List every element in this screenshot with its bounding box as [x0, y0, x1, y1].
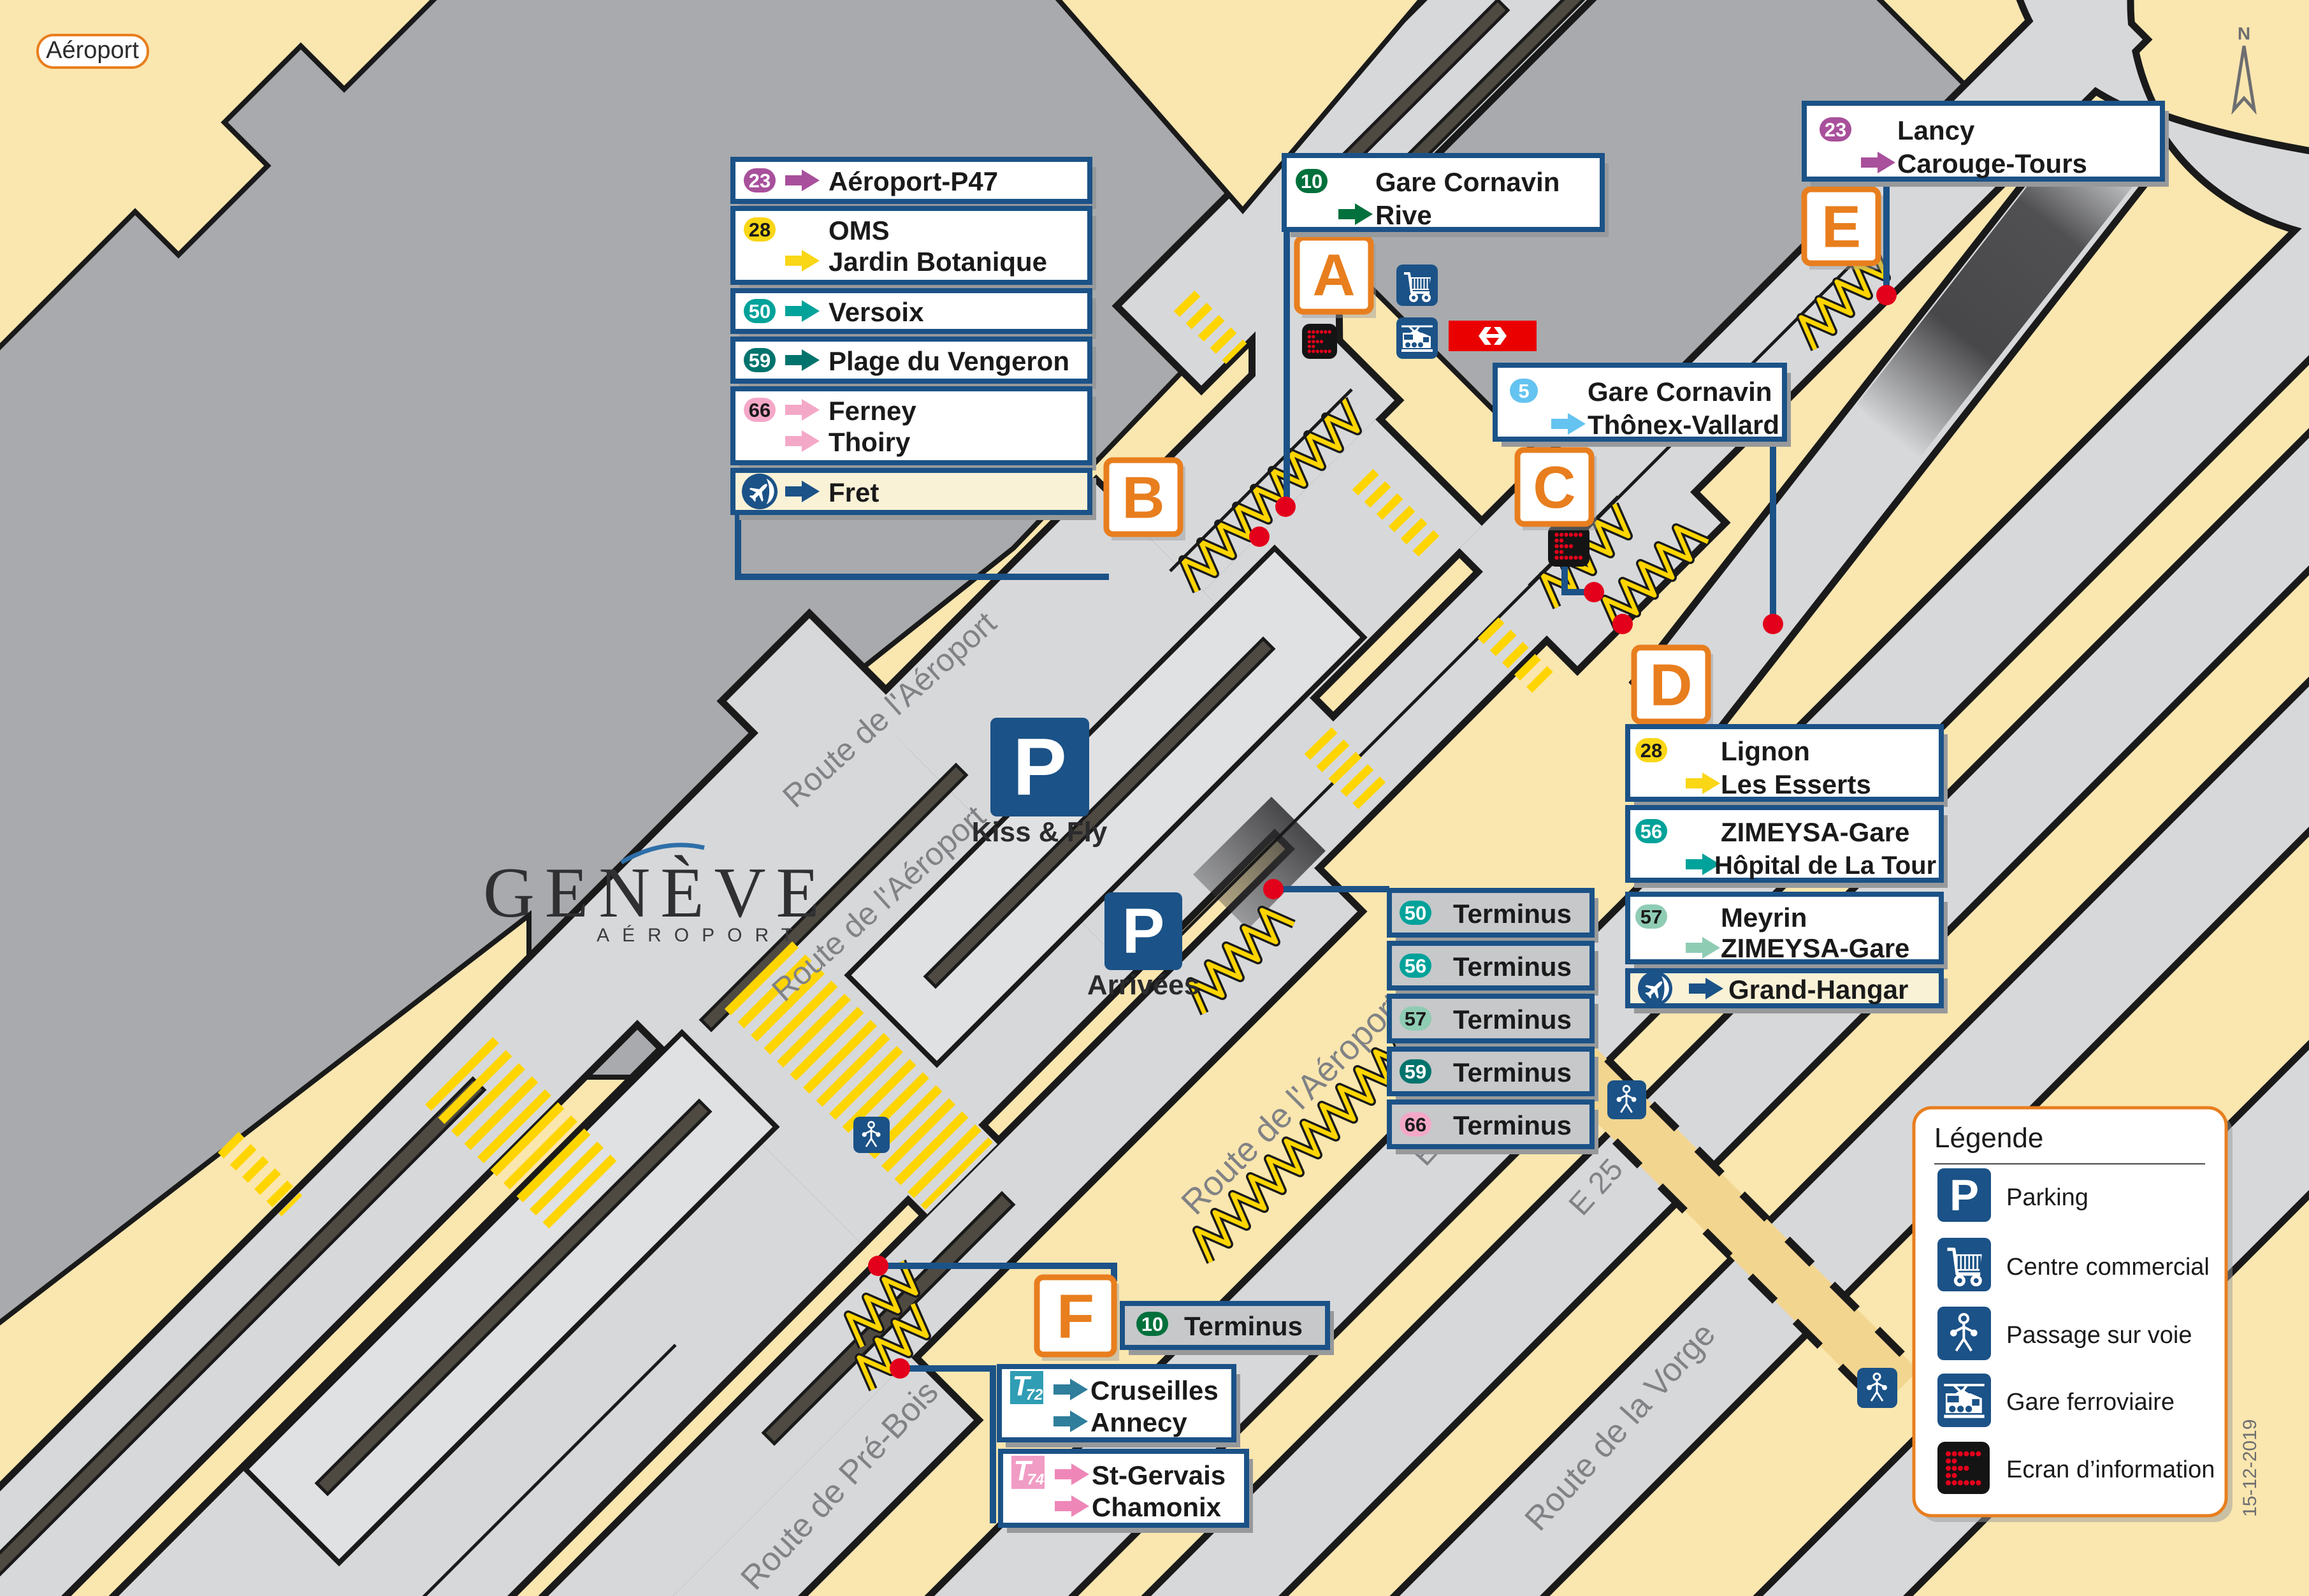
svg-text:Cruseilles: Cruseilles	[1090, 1375, 1219, 1405]
svg-text:Aéroport-P47: Aéroport-P47	[829, 166, 998, 196]
svg-text:Thoiry: Thoiry	[829, 427, 911, 457]
svg-text:B: B	[1122, 464, 1164, 530]
svg-text:A: A	[1312, 242, 1355, 308]
svg-text:Gare Cornavin: Gare Cornavin	[1588, 377, 1772, 407]
svg-text:ZIMEYSA-Gare: ZIMEYSA-Gare	[1721, 817, 1909, 847]
svg-text:Annecy: Annecy	[1090, 1407, 1187, 1437]
svg-text:Plage du Vengeron: Plage du Vengeron	[829, 346, 1069, 376]
svg-text:Arrivées: Arrivées	[1087, 969, 1199, 1001]
svg-text:66: 66	[1405, 1114, 1426, 1136]
svg-text:Rive: Rive	[1375, 200, 1432, 230]
svg-text:Aéroport: Aéroport	[46, 37, 139, 64]
svg-text:P: P	[1013, 722, 1067, 812]
svg-text:E: E	[1821, 193, 1861, 259]
svg-text:23: 23	[1825, 119, 1846, 141]
svg-text:Gare Cornavin: Gare Cornavin	[1375, 167, 1560, 197]
svg-text:57: 57	[1405, 1008, 1426, 1030]
svg-text:56: 56	[1405, 955, 1426, 977]
svg-text:Les Esserts: Les Esserts	[1721, 769, 1871, 799]
svg-text:Terminus: Terminus	[1453, 1005, 1572, 1034]
svg-text:Kiss & Fly: Kiss & Fly	[972, 816, 1108, 848]
svg-text:5: 5	[1518, 380, 1529, 402]
svg-text:Terminus: Terminus	[1453, 1110, 1572, 1140]
svg-text:Ferney: Ferney	[829, 396, 916, 426]
svg-text:Parking: Parking	[2006, 1184, 2088, 1211]
svg-text:Grand-Hangar: Grand-Hangar	[1728, 975, 1908, 1005]
svg-text:56: 56	[1640, 820, 1662, 843]
svg-text:Thônex-Vallard: Thônex-Vallard	[1588, 410, 1779, 440]
svg-text:Légende: Légende	[1934, 1122, 2043, 1154]
svg-text:57: 57	[1640, 906, 1662, 928]
svg-text:Terminus: Terminus	[1453, 899, 1572, 929]
svg-text:50: 50	[1405, 902, 1426, 924]
svg-text:50: 50	[749, 300, 771, 323]
svg-text:Passage sur voie: Passage sur voie	[2006, 1322, 2192, 1349]
svg-text:23: 23	[749, 170, 771, 192]
svg-text:Lancy: Lancy	[1897, 115, 1975, 145]
svg-text:Jardin Botanique: Jardin Botanique	[829, 247, 1047, 277]
svg-text:72: 72	[1026, 1386, 1043, 1404]
svg-text:59: 59	[1405, 1061, 1426, 1083]
svg-text:Centre commercial: Centre commercial	[2006, 1254, 2210, 1280]
svg-text:15-12-2019: 15-12-2019	[2240, 1419, 2261, 1517]
svg-text:F: F	[1057, 1281, 1094, 1351]
svg-text:Lignon: Lignon	[1721, 736, 1810, 766]
svg-text:D: D	[1649, 651, 1692, 718]
svg-text:GENÈVE: GENÈVE	[483, 853, 830, 932]
svg-text:59: 59	[749, 349, 771, 372]
svg-text:Versoix: Versoix	[829, 297, 924, 327]
svg-text:66: 66	[749, 399, 771, 421]
svg-text:28: 28	[1640, 739, 1662, 762]
svg-text:Hôpital de La Tour: Hôpital de La Tour	[1714, 852, 1936, 880]
svg-text:P: P	[1122, 896, 1165, 967]
svg-text:10: 10	[1301, 170, 1322, 192]
svg-text:AÉROPORT: AÉROPORT	[597, 925, 806, 946]
svg-text:Terminus: Terminus	[1453, 1057, 1572, 1087]
svg-text:Carouge-Tours: Carouge-Tours	[1897, 149, 2087, 178]
svg-text:OMS: OMS	[829, 215, 890, 245]
svg-text:74: 74	[1027, 1471, 1045, 1488]
svg-text:Chamonix: Chamonix	[1092, 1492, 1222, 1522]
svg-text:C: C	[1533, 454, 1575, 520]
svg-text:N: N	[2238, 24, 2250, 43]
svg-text:Ecran d’information: Ecran d’information	[2006, 1456, 2215, 1483]
svg-text:P: P	[1950, 1171, 1979, 1220]
svg-text:Terminus: Terminus	[1184, 1311, 1303, 1341]
svg-text:10: 10	[1141, 1313, 1163, 1335]
svg-text:ZIMEYSA-Gare: ZIMEYSA-Gare	[1721, 933, 1909, 963]
svg-text:Gare ferroviaire: Gare ferroviaire	[2006, 1389, 2175, 1416]
svg-text:28: 28	[749, 219, 771, 241]
svg-text:Terminus: Terminus	[1453, 952, 1572, 982]
svg-text:Meyrin: Meyrin	[1721, 903, 1807, 932]
svg-text:St-Gervais: St-Gervais	[1092, 1460, 1226, 1490]
svg-text:Fret: Fret	[829, 477, 879, 507]
